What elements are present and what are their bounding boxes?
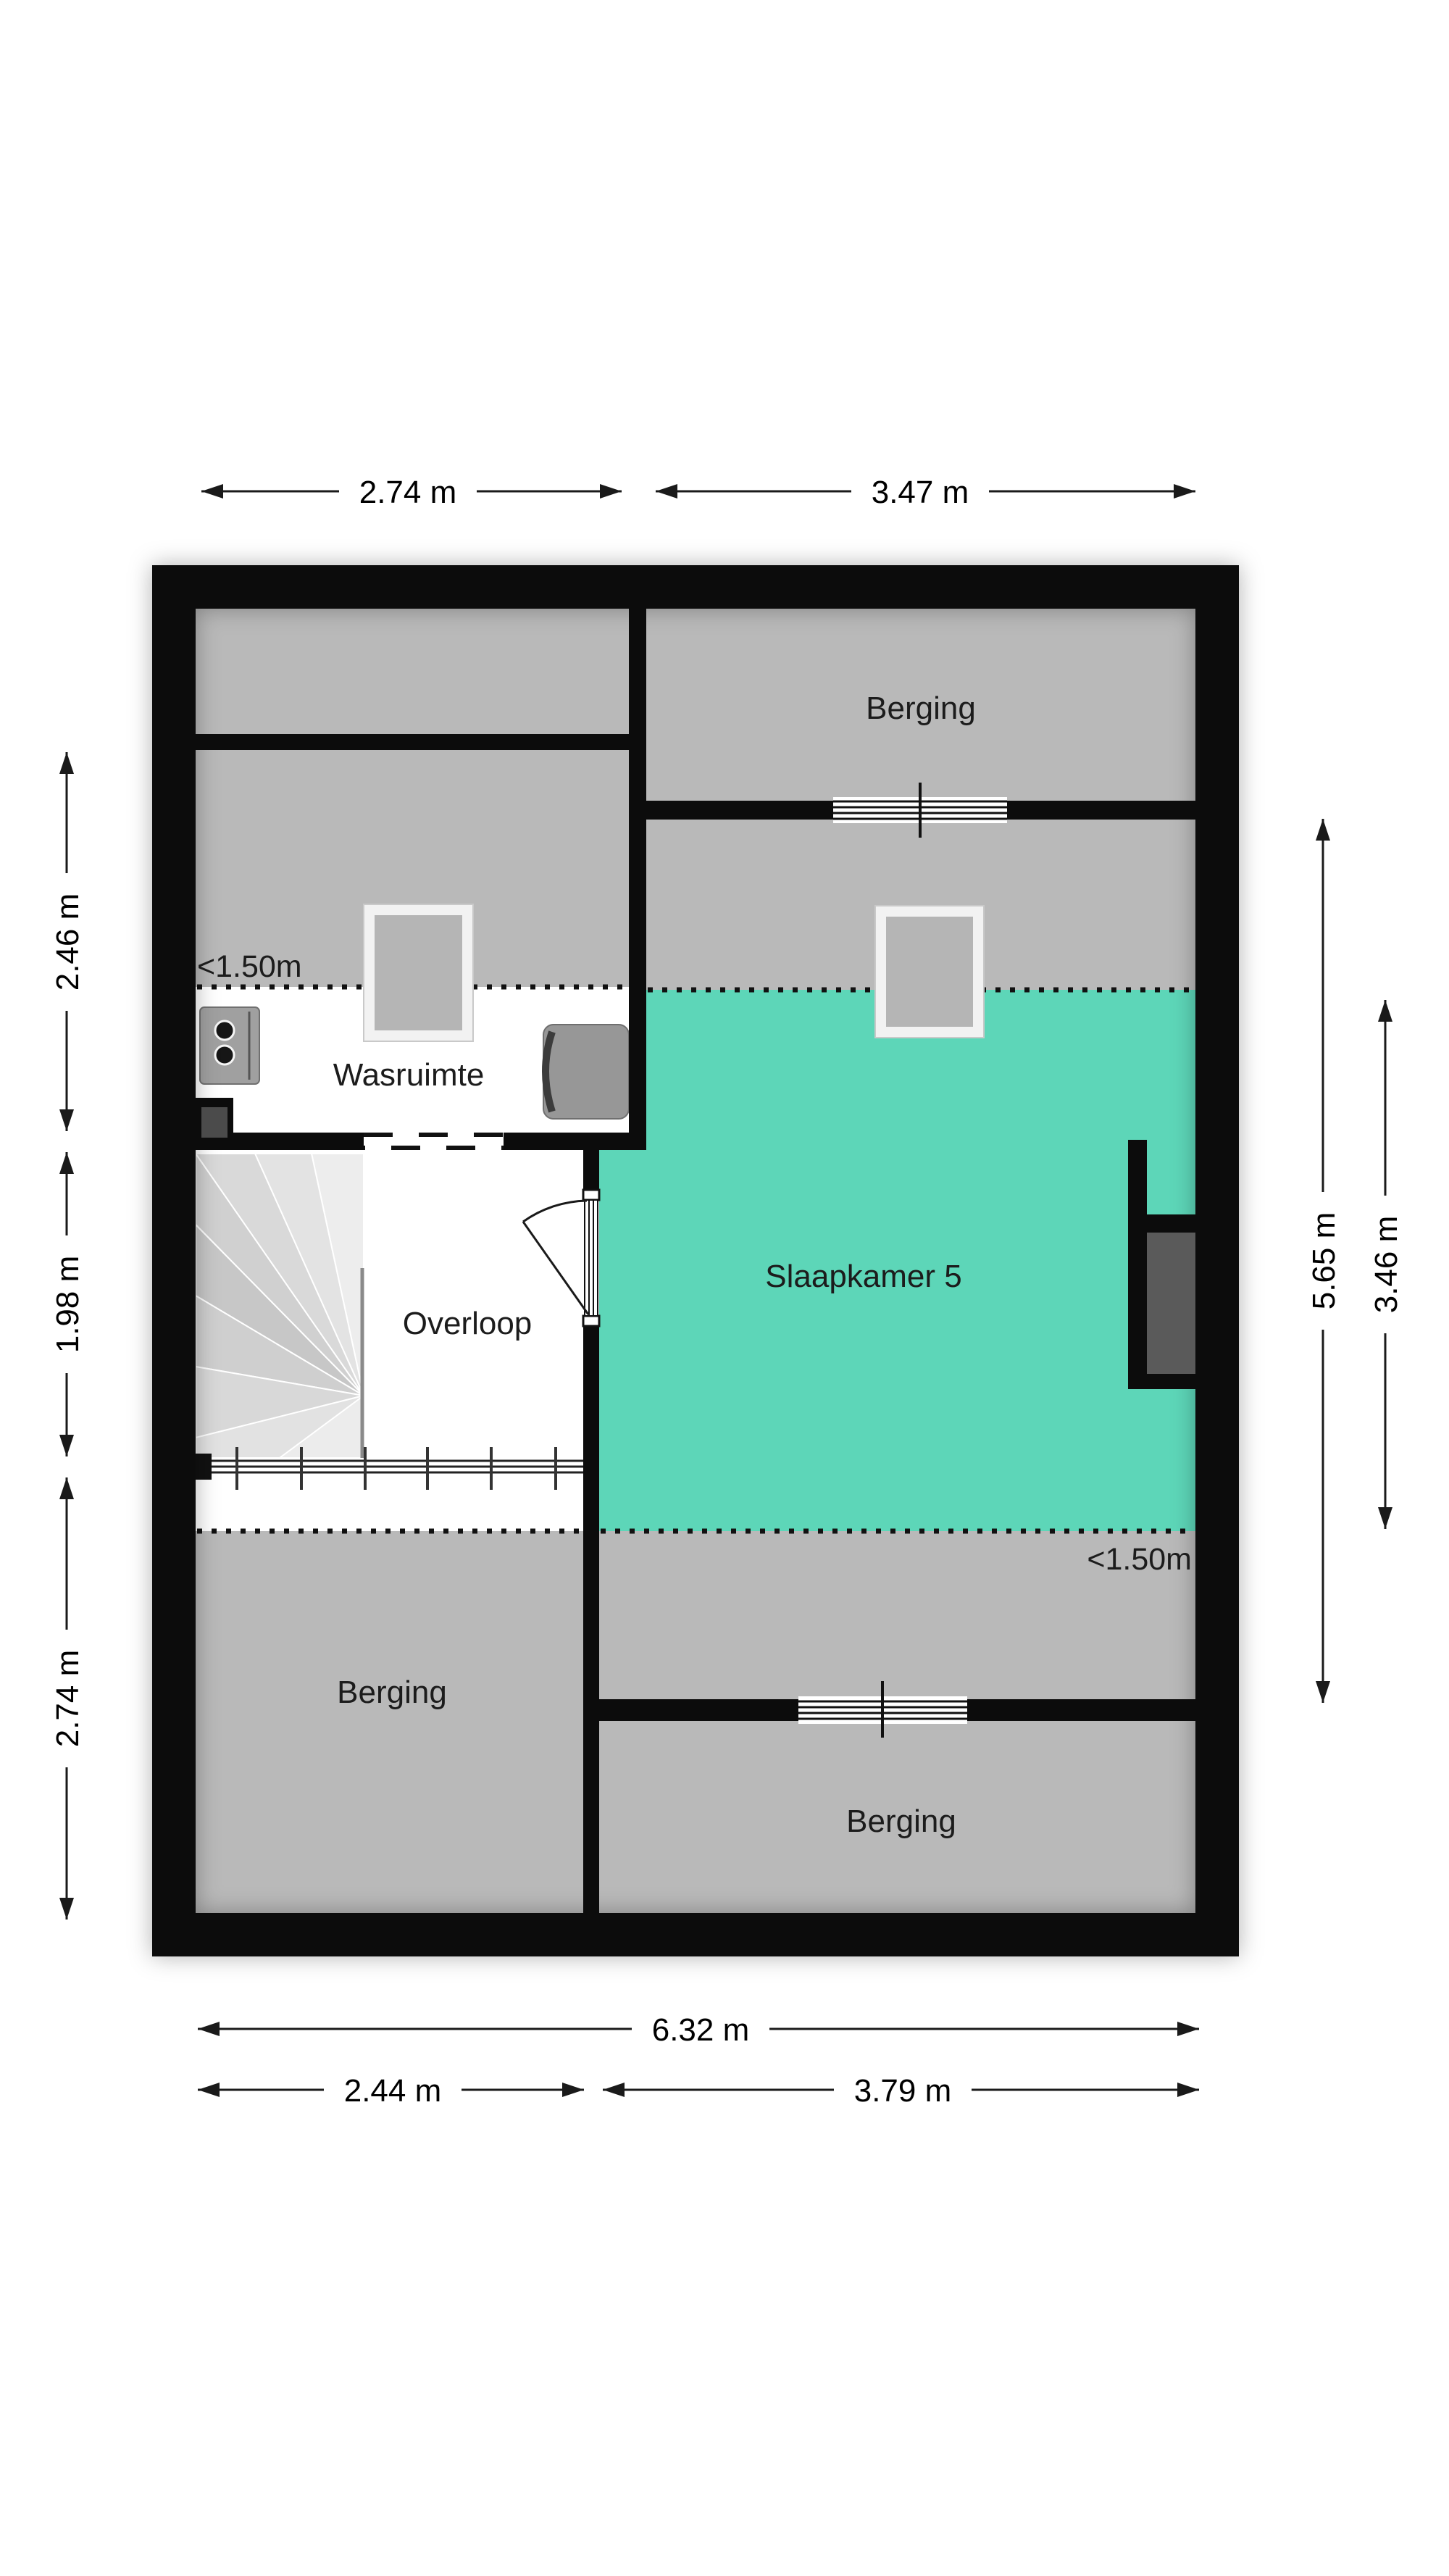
door-frame-bottom	[583, 1316, 599, 1326]
dimension-label-bottom-right: 3.79 m	[854, 2073, 952, 2109]
room-label-slaapkamer-5: Slaapkamer 5	[765, 1259, 961, 1294]
chimney-niche-panel	[1147, 1233, 1195, 1374]
room-attic-topleft	[196, 609, 629, 734]
dimension-label-bottom-left: 2.44 m	[344, 2073, 442, 2109]
wall-topleft-room	[196, 734, 629, 750]
wall-door-stub	[583, 1150, 599, 1190]
boiler-icon	[543, 1025, 629, 1119]
room-label-berging-top: Berging	[866, 691, 976, 726]
door-frame-top	[583, 1190, 599, 1200]
dimension-label-right-2: 3.46 m	[1369, 1216, 1404, 1314]
room-berging-bottom-left	[196, 1531, 583, 1913]
stairs	[196, 1154, 364, 1458]
dimension-label-right-1: 5.65 m	[1306, 1212, 1342, 1310]
duct-inset	[201, 1107, 227, 1138]
chimney-niche-top	[1147, 1214, 1195, 1233]
low-headroom-label-right: <1.50m	[1087, 1542, 1192, 1577]
wall-vertical-divider	[629, 609, 646, 1133]
floor-plan: Berging Wasruimte Slaapkamer 5 Overloop …	[0, 0, 1449, 2576]
floorplan-page: Berging Wasruimte Slaapkamer 5 Overloop …	[0, 0, 1449, 2576]
low-headroom-label-left: <1.50m	[197, 949, 302, 984]
chimney-niche-left	[1128, 1140, 1147, 1389]
dimension-label-top-right: 3.47 m	[872, 475, 969, 510]
skylight-window-left	[364, 904, 473, 1041]
washing-machine-icon	[200, 1007, 259, 1084]
passage-opening-wasruimte	[364, 1130, 504, 1153]
wall-overloop-berging	[583, 1326, 599, 1913]
dimension-label-top-left: 2.74 m	[359, 475, 457, 510]
dimension-label-left-3: 2.74 m	[50, 1650, 85, 1748]
dimension-label-left-2: 1.98 m	[50, 1256, 85, 1354]
chimney-niche-bottom	[1147, 1374, 1195, 1389]
skylight-window-right	[875, 906, 984, 1038]
room-label-berging-bottom-right: Berging	[846, 1804, 956, 1839]
railing-end-post	[194, 1454, 212, 1480]
dimension-label-bottom-total: 6.32 m	[652, 2012, 750, 2048]
dimension-label-left-1: 2.46 m	[50, 893, 85, 991]
door-leaf	[585, 1200, 598, 1316]
room-label-berging-bottom-left: Berging	[337, 1675, 447, 1710]
room-label-wasruimte: Wasruimte	[333, 1057, 485, 1093]
room-label-overloop: Overloop	[403, 1306, 533, 1341]
